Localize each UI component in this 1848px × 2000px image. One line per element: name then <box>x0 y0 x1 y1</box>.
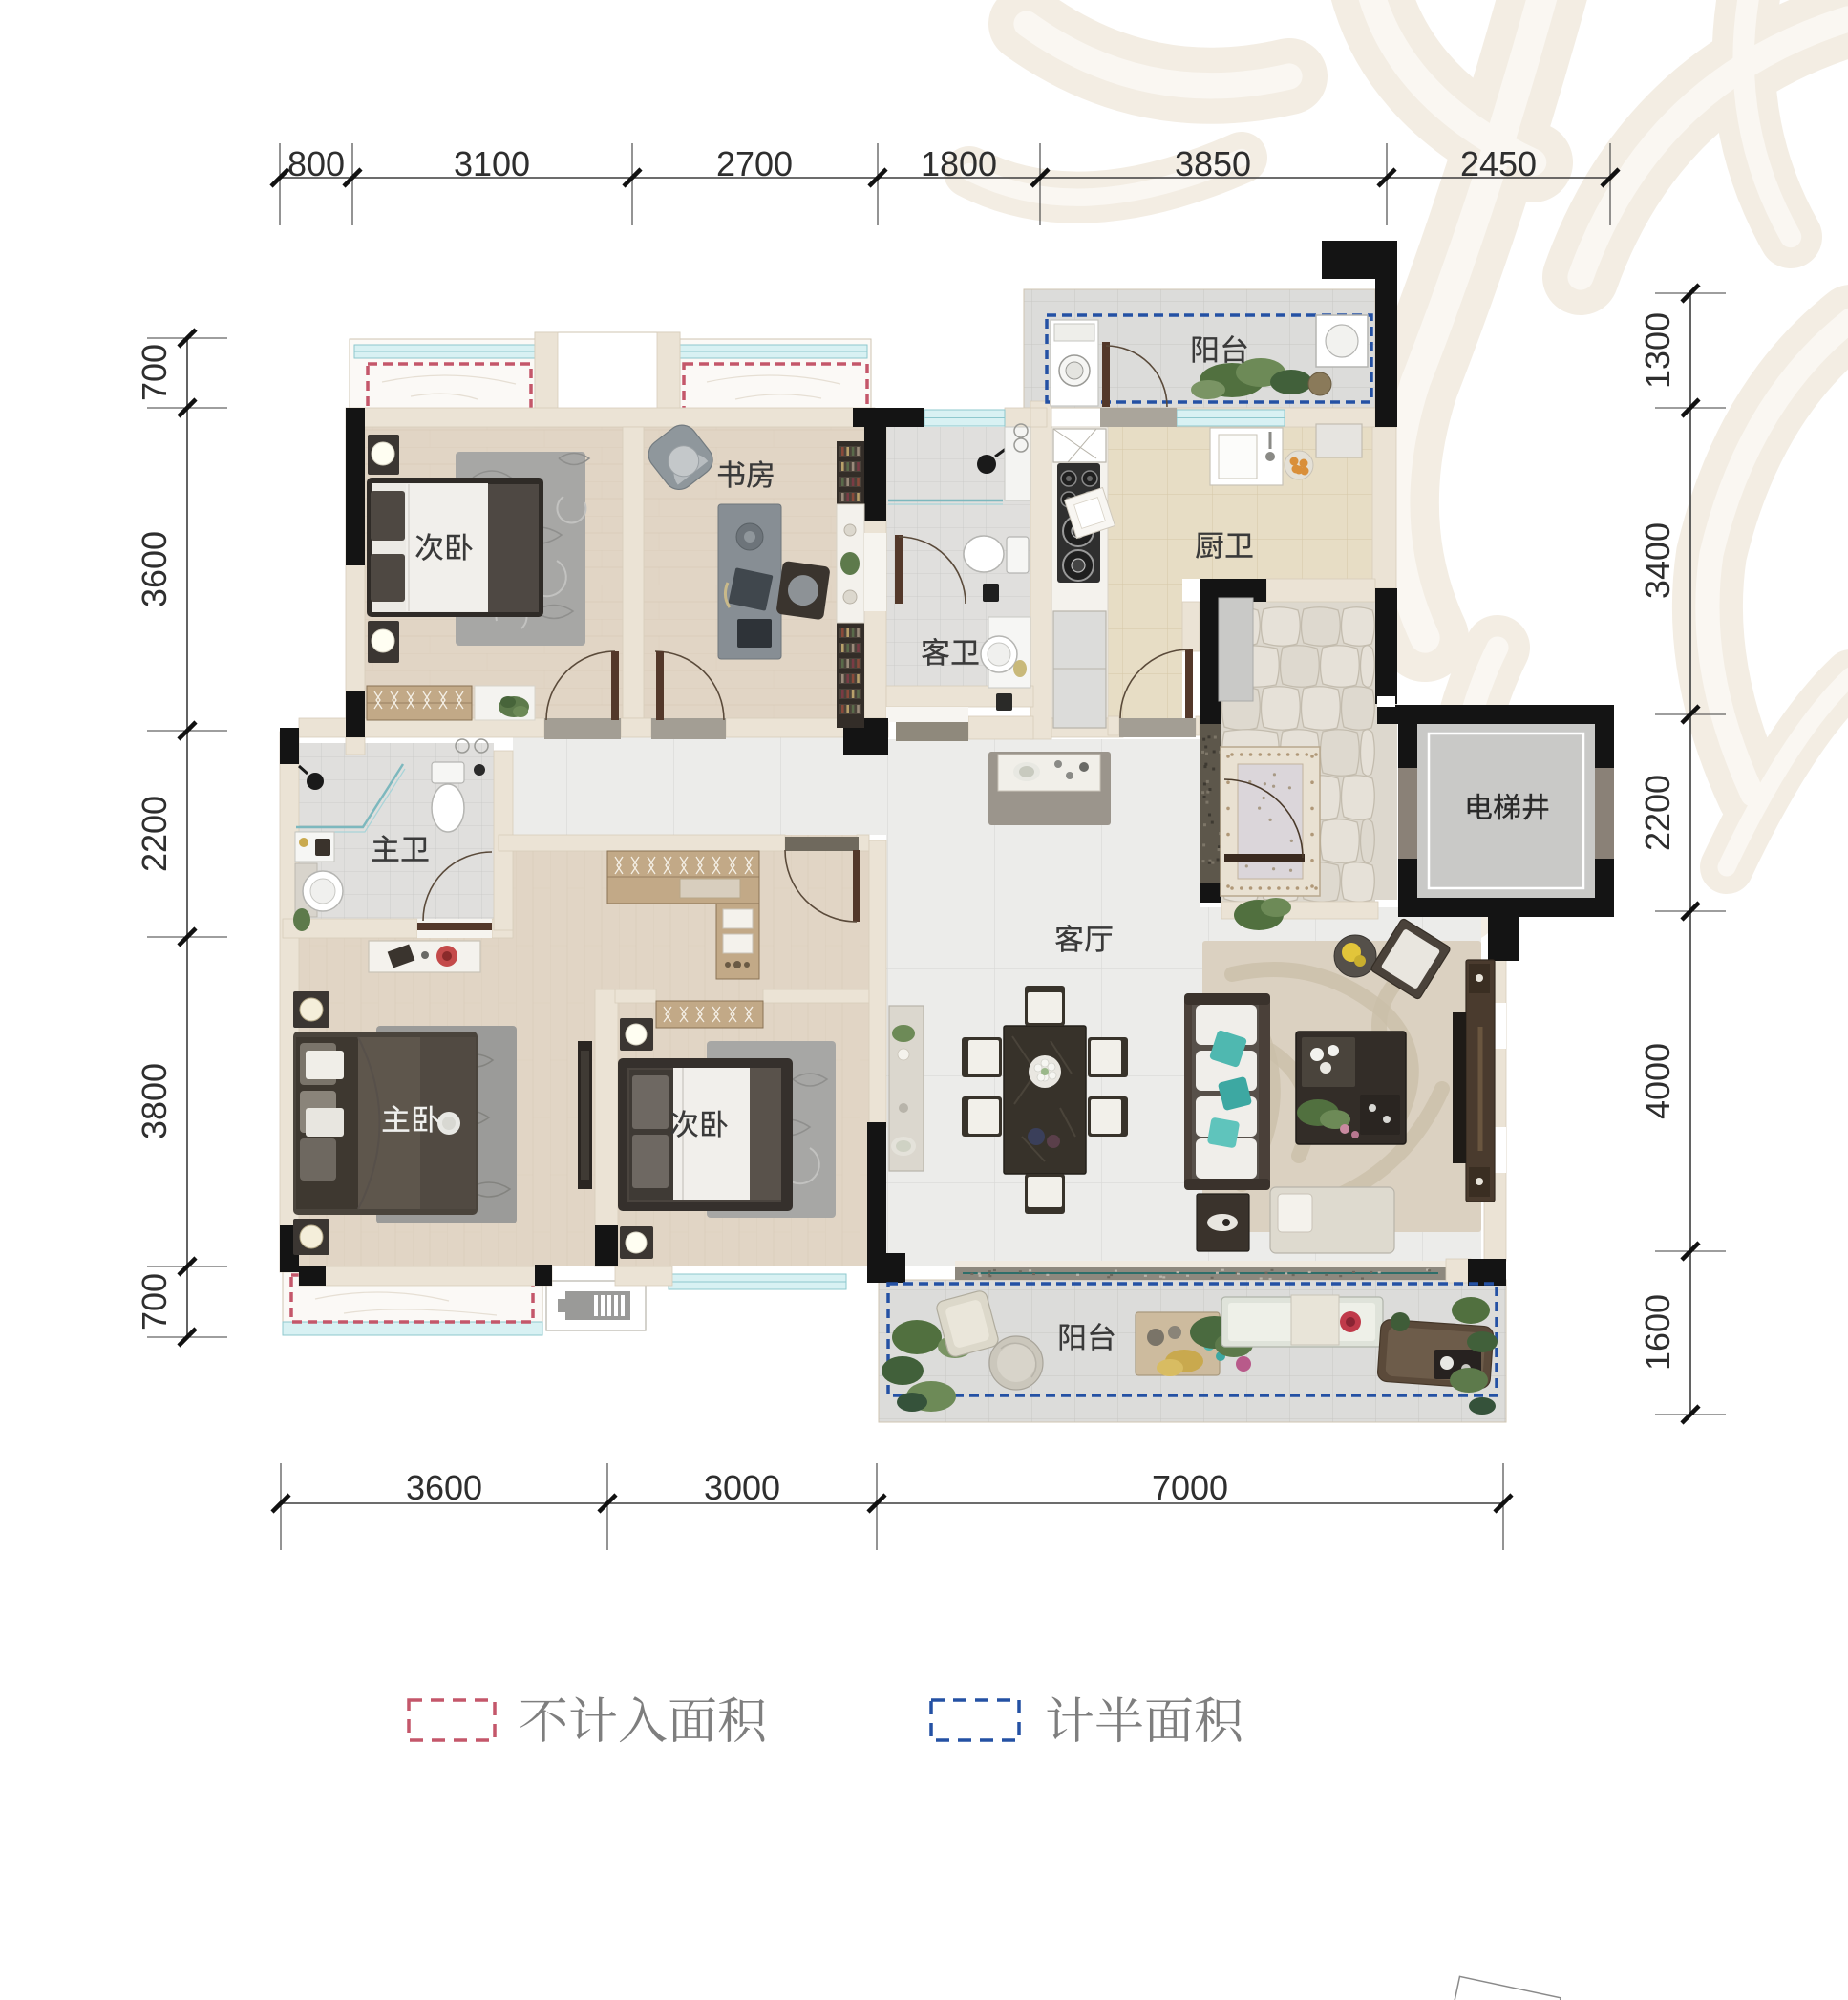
svg-text:2700: 2700 <box>716 144 793 183</box>
svg-text:1600: 1600 <box>1638 1294 1677 1371</box>
svg-text:700: 700 <box>135 344 174 401</box>
svg-text:3600: 3600 <box>406 1468 482 1507</box>
svg-text:700: 700 <box>135 1273 174 1330</box>
svg-text:3800: 3800 <box>135 1063 174 1139</box>
svg-text:3000: 3000 <box>704 1468 780 1507</box>
svg-text:3850: 3850 <box>1175 144 1251 183</box>
svg-text:2450: 2450 <box>1460 144 1537 183</box>
svg-text:7000: 7000 <box>1152 1468 1228 1507</box>
svg-text:3400: 3400 <box>1638 522 1677 599</box>
svg-text:1800: 1800 <box>921 144 997 183</box>
svg-text:2200: 2200 <box>1638 775 1677 851</box>
svg-text:4000: 4000 <box>1638 1043 1677 1119</box>
svg-text:3600: 3600 <box>135 531 174 607</box>
svg-text:3100: 3100 <box>454 144 530 183</box>
svg-text:2200: 2200 <box>135 796 174 872</box>
svg-text:1300: 1300 <box>1638 312 1677 389</box>
svg-text:800: 800 <box>287 144 345 183</box>
